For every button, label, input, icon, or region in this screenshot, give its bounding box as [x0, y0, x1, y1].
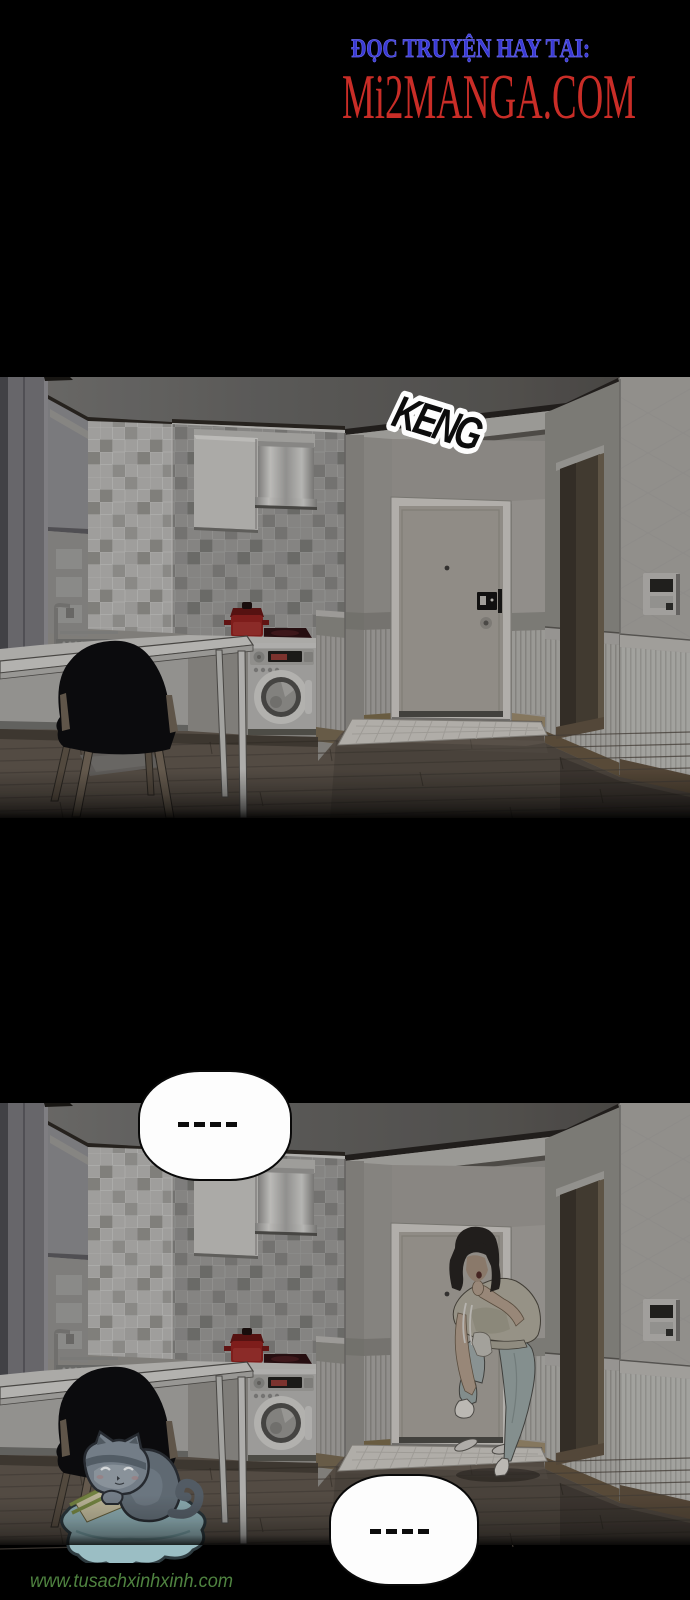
svg-text:Mi2MANGA.COM: Mi2MANGA.COM: [342, 62, 636, 132]
svg-text:KENG: KENG: [387, 385, 488, 461]
svg-text:ĐỌC TRUYỆN HAY TẠI:: ĐỌC TRUYỆN HAY TẠI:: [351, 34, 590, 63]
svg-text:www.tusachxinhxinh.com: www.tusachxinhxinh.com: [30, 1571, 233, 1592]
